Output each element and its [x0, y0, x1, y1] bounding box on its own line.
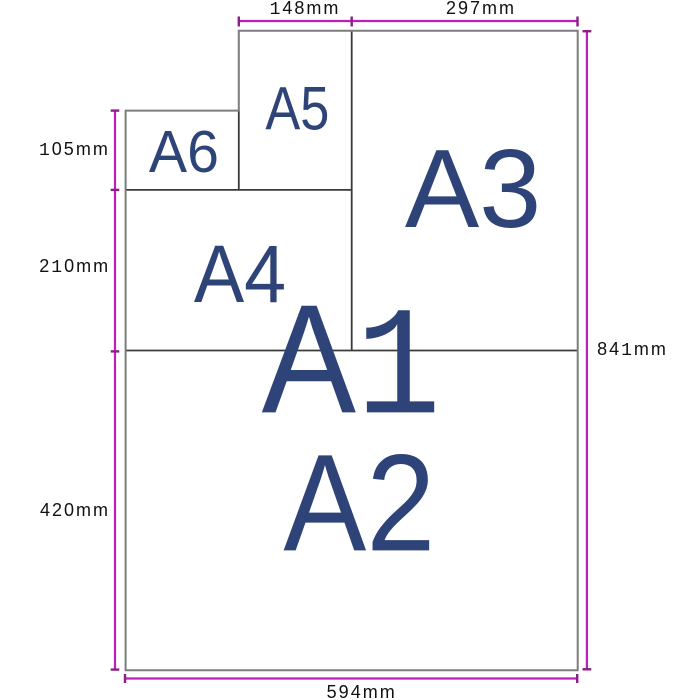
- svg-text:A4: A4: [194, 228, 286, 320]
- svg-text:A6: A6: [149, 119, 219, 185]
- svg-text:841mm: 841mm: [597, 339, 668, 361]
- svg-text:594mm: 594mm: [327, 682, 397, 700]
- svg-text:A5: A5: [265, 76, 329, 144]
- svg-text:148mm: 148mm: [270, 0, 341, 20]
- svg-text:A2: A2: [283, 425, 435, 580]
- svg-text:105mm: 105mm: [39, 139, 110, 161]
- svg-text:210mm: 210mm: [39, 256, 110, 278]
- svg-text:A3: A3: [405, 126, 541, 251]
- svg-text:297mm: 297mm: [446, 0, 516, 18]
- svg-text:420mm: 420mm: [40, 500, 110, 520]
